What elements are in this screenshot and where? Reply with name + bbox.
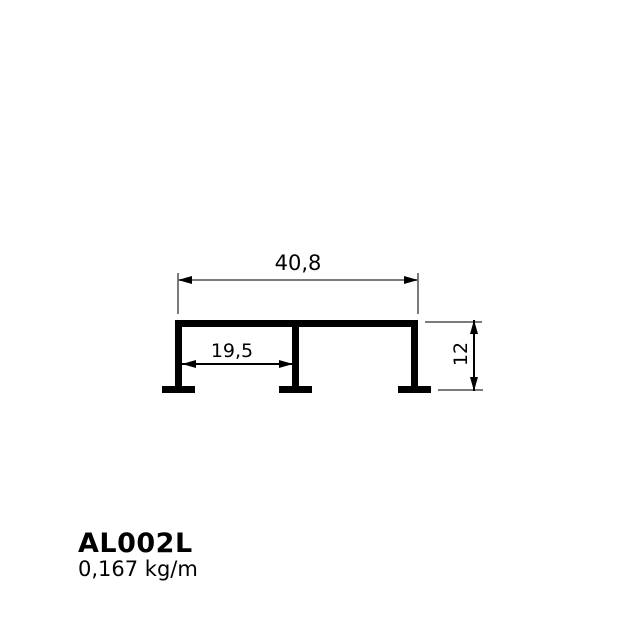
dimension-label-overall-width: 40,8	[263, 253, 333, 274]
profile-left-foot	[162, 386, 195, 393]
profile-right-foot	[398, 386, 431, 393]
profile-middle-foot	[279, 386, 312, 393]
profile-left-leg	[175, 327, 182, 386]
arrowhead-right-icon	[404, 276, 418, 284]
unit-weight-label: 0,167 kg/m	[78, 558, 198, 581]
arrowhead-inner-left-icon	[182, 360, 196, 368]
dimension-line-horizontal	[178, 279, 418, 281]
arrowhead-inner-right-icon	[279, 360, 293, 368]
dimension-label-inner-span: 19,5	[202, 342, 262, 361]
technical-drawing-canvas: 40,8 19,5 12 AL002L 0,167 kg/m	[0, 0, 625, 625]
arrowhead-down-icon	[470, 377, 478, 391]
dimension-label-height: 12	[451, 334, 471, 374]
profile-right-leg	[411, 327, 418, 386]
dimension-line-inner	[182, 363, 292, 365]
arrowhead-up-icon	[470, 320, 478, 334]
profile-top-bar	[175, 320, 418, 327]
arrowhead-left-icon	[178, 276, 192, 284]
profile-code-label: AL002L	[78, 530, 193, 557]
profile-middle-leg	[292, 327, 299, 386]
